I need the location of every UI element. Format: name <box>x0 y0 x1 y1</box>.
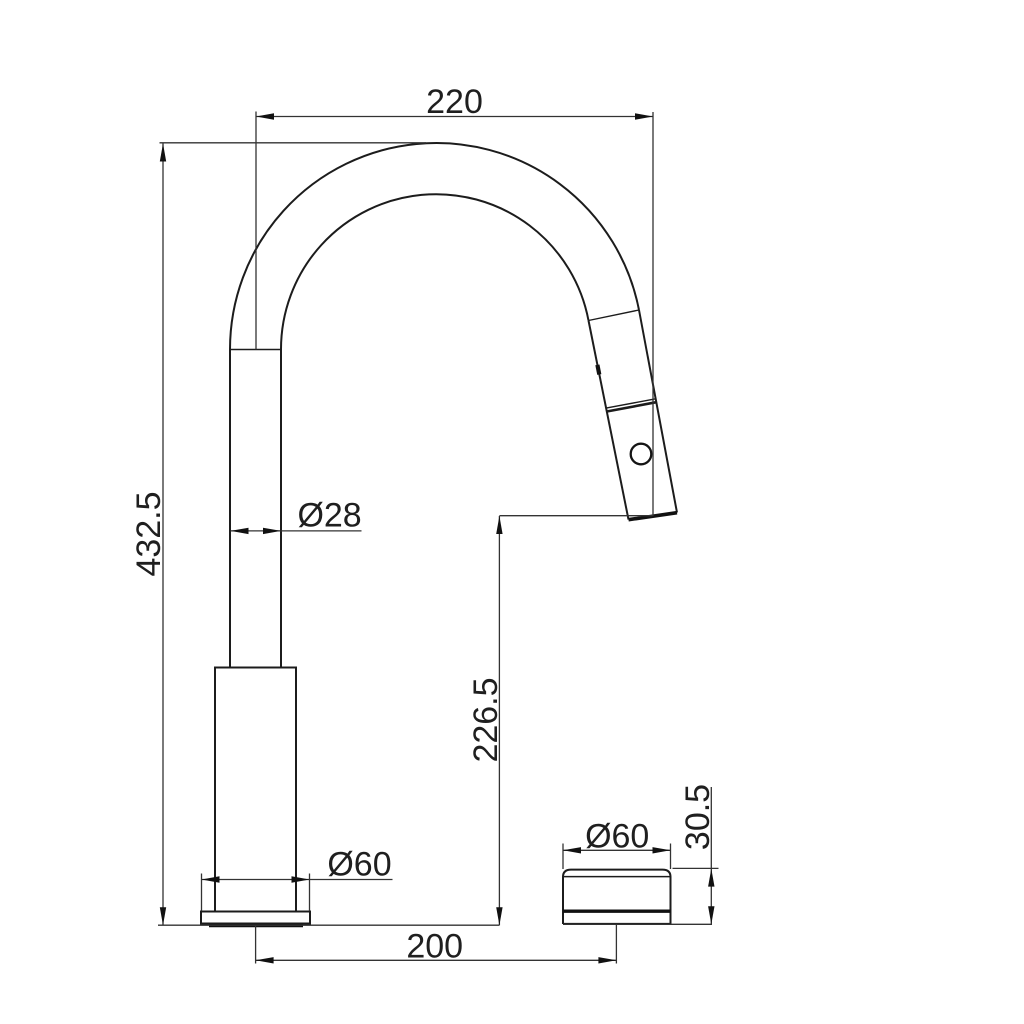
svg-text:200: 200 <box>406 928 463 966</box>
svg-text:226.5: 226.5 <box>467 677 505 762</box>
svg-text:30.5: 30.5 <box>679 784 717 850</box>
svg-text:Ø28: Ø28 <box>297 497 361 535</box>
svg-text:220: 220 <box>426 83 483 121</box>
svg-text:432.5: 432.5 <box>130 491 168 576</box>
svg-text:Ø60: Ø60 <box>585 818 649 856</box>
svg-text:Ø60: Ø60 <box>327 846 391 884</box>
